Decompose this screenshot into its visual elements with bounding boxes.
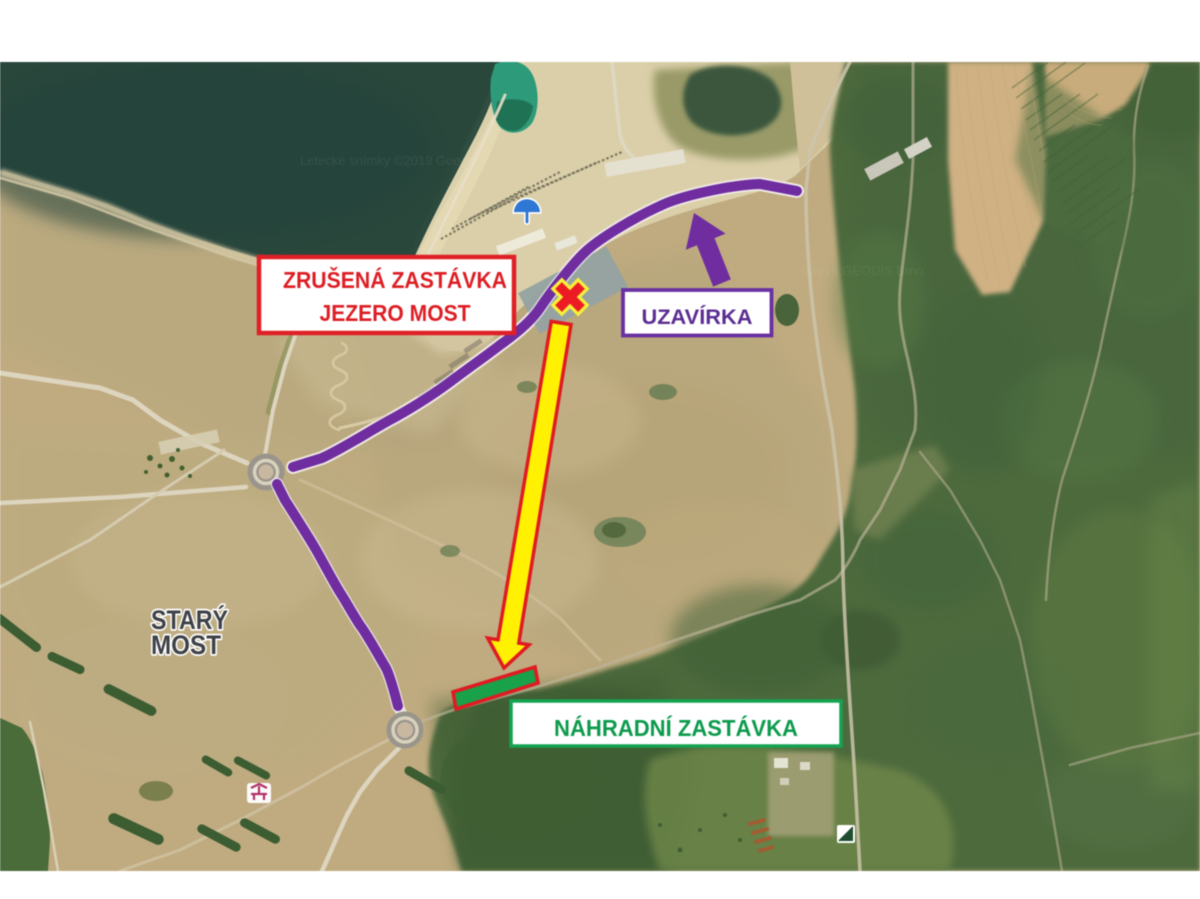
svg-text:NÁHRADNÍ ZASTÁVKA: NÁHRADNÍ ZASTÁVKA bbox=[554, 714, 798, 741]
svg-text:JEZERO MOST: JEZERO MOST bbox=[320, 300, 471, 326]
svg-text:ZRUŠENÁ ZASTÁVKA: ZRUŠENÁ ZASTÁVKA bbox=[283, 266, 507, 293]
svg-text:©2019 GEODIS Brno: ©2019 GEODIS Brno bbox=[800, 263, 924, 278]
svg-text:MOST: MOST bbox=[151, 630, 221, 660]
svg-text:Letecké snímky ©2019 Google: Letecké snímky ©2019 Google bbox=[300, 153, 478, 168]
svg-text:UZAVÍRKA: UZAVÍRKA bbox=[642, 306, 753, 329]
